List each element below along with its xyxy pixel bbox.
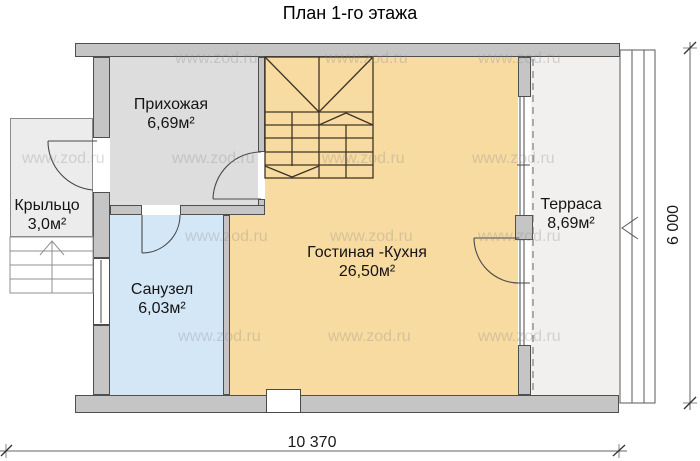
- dimension-line-right: [683, 42, 697, 410]
- room-name: Санузел: [131, 280, 193, 299]
- staircase: [265, 57, 373, 178]
- dimension-width-label: 10 370: [288, 434, 337, 452]
- room-label-living-kitchen: Гостиная -Кухня 26,50м²: [307, 243, 427, 281]
- terrace-wall-glazing: [517, 97, 530, 345]
- room-label-hallway: Прихожая 6,69м²: [134, 95, 208, 133]
- plan-title: План 1-го этажа: [0, 3, 700, 24]
- room-label-terrace: Терраса 8,69м²: [540, 195, 601, 233]
- porch-steps: [10, 237, 93, 293]
- room-area: 3,0м²: [14, 215, 79, 234]
- room-label-porch: Крыльцо 3,0м²: [14, 196, 79, 234]
- floor-plan-canvas: План 1-го этажа: [0, 0, 700, 461]
- room-name: Крыльцо: [14, 196, 79, 215]
- room-name: Гостиная -Кухня: [307, 243, 427, 262]
- terrace-steps: [620, 50, 655, 403]
- room-label-bathroom: Санузел 6,03м²: [131, 280, 193, 318]
- dimension-height-label: 6 000: [665, 205, 683, 245]
- room-area: 6,03м²: [131, 299, 193, 318]
- room-area: 8,69м²: [540, 214, 601, 233]
- room-area: 6,69м²: [134, 114, 208, 133]
- room-name: Прихожая: [134, 95, 208, 114]
- room-name: Терраса: [540, 195, 601, 214]
- bathroom-door: [142, 215, 180, 253]
- front-door: [48, 141, 97, 190]
- hallway-living-door: [213, 152, 261, 199]
- room-area: 26,50м²: [307, 262, 427, 281]
- terrace-door: [474, 238, 519, 283]
